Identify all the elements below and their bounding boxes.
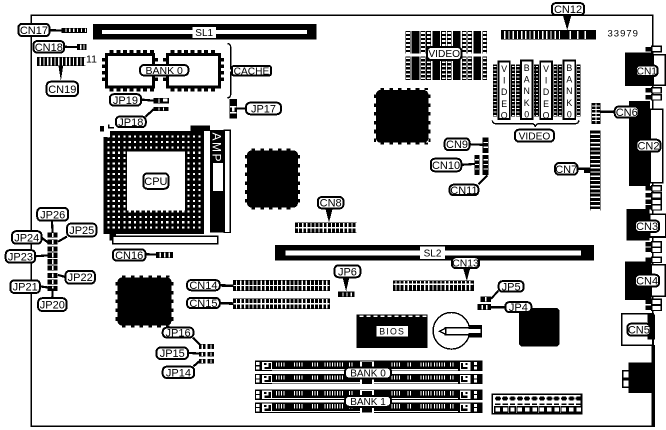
svg-text:CN6: CN6	[616, 107, 638, 119]
svg-text:BANK 0: BANK 0	[146, 65, 184, 77]
svg-text:CN4: CN4	[636, 276, 658, 288]
svg-text:CN11: CN11	[450, 185, 477, 197]
svg-text:O: O	[501, 111, 508, 121]
svg-text:JP6: JP6	[338, 266, 357, 278]
svg-text:V: V	[501, 64, 507, 74]
svg-text:I: I	[545, 76, 547, 86]
svg-text:JP22: JP22	[68, 272, 93, 284]
svg-text:CN5: CN5	[628, 325, 650, 337]
svg-text:CN18: CN18	[35, 42, 63, 54]
svg-text:CPU: CPU	[144, 176, 167, 188]
svg-text:VIDEO: VIDEO	[519, 131, 551, 142]
svg-text:I: I	[503, 76, 505, 86]
svg-text:CN10: CN10	[432, 160, 460, 172]
svg-text:JP18: JP18	[118, 117, 143, 129]
svg-text:B: B	[524, 63, 530, 73]
svg-text:BANK 0: BANK 0	[350, 369, 386, 380]
svg-text:V: V	[543, 64, 549, 74]
svg-text:BANK 1: BANK 1	[350, 397, 386, 408]
svg-text:K: K	[524, 98, 530, 108]
svg-text:CN16: CN16	[115, 250, 143, 262]
svg-text:N: N	[566, 86, 572, 96]
svg-text:JP5: JP5	[502, 281, 521, 293]
svg-text:SL2: SL2	[424, 248, 442, 259]
svg-text:N: N	[524, 86, 530, 96]
svg-text:JP4: JP4	[509, 302, 528, 314]
svg-text:BIOS: BIOS	[379, 326, 405, 336]
svg-text:CN17: CN17	[20, 25, 48, 37]
svg-text:E: E	[543, 99, 549, 109]
svg-text:JP20: JP20	[40, 300, 65, 312]
svg-text:CN15: CN15	[189, 298, 217, 310]
svg-text:O: O	[543, 111, 550, 121]
svg-text:E: E	[501, 99, 507, 109]
svg-text:CACHE: CACHE	[234, 66, 270, 77]
svg-text:VIDEO: VIDEO	[428, 49, 460, 60]
svg-text:0: 0	[567, 110, 572, 120]
svg-text:JP15: JP15	[160, 348, 185, 360]
svg-text:A: A	[524, 75, 530, 85]
svg-text:CN9: CN9	[446, 139, 468, 151]
svg-text:B: B	[566, 63, 572, 73]
svg-text:JP17: JP17	[251, 103, 276, 115]
svg-text:JP21: JP21	[13, 282, 38, 294]
svg-text:SL1: SL1	[195, 28, 213, 39]
svg-text:33979: 33979	[608, 29, 639, 40]
svg-text:CN12: CN12	[554, 4, 582, 16]
svg-text:CN8: CN8	[320, 198, 342, 210]
svg-text:CN7: CN7	[555, 164, 577, 176]
svg-text:CN19: CN19	[48, 84, 76, 96]
svg-text:0: 0	[524, 110, 529, 120]
svg-text:D: D	[501, 87, 507, 97]
svg-text:JP16: JP16	[166, 328, 191, 340]
svg-text:JP23: JP23	[8, 251, 33, 263]
svg-text:AMP: AMP	[210, 133, 224, 164]
svg-text:11: 11	[86, 53, 97, 65]
svg-text:CN3: CN3	[636, 221, 658, 233]
svg-text:K: K	[566, 98, 572, 108]
svg-text:CN2: CN2	[637, 141, 659, 153]
svg-text:JP14: JP14	[166, 367, 191, 379]
svg-text:JP25: JP25	[69, 225, 94, 237]
svg-text:CN13: CN13	[452, 258, 479, 269]
svg-text:CN14: CN14	[189, 280, 217, 292]
svg-text:JP19: JP19	[113, 95, 138, 107]
svg-text:JP24: JP24	[14, 232, 39, 244]
svg-text:D: D	[543, 87, 549, 97]
svg-text:A: A	[566, 75, 572, 85]
svg-text:CN1: CN1	[637, 67, 658, 78]
svg-text:JP26: JP26	[40, 209, 65, 221]
